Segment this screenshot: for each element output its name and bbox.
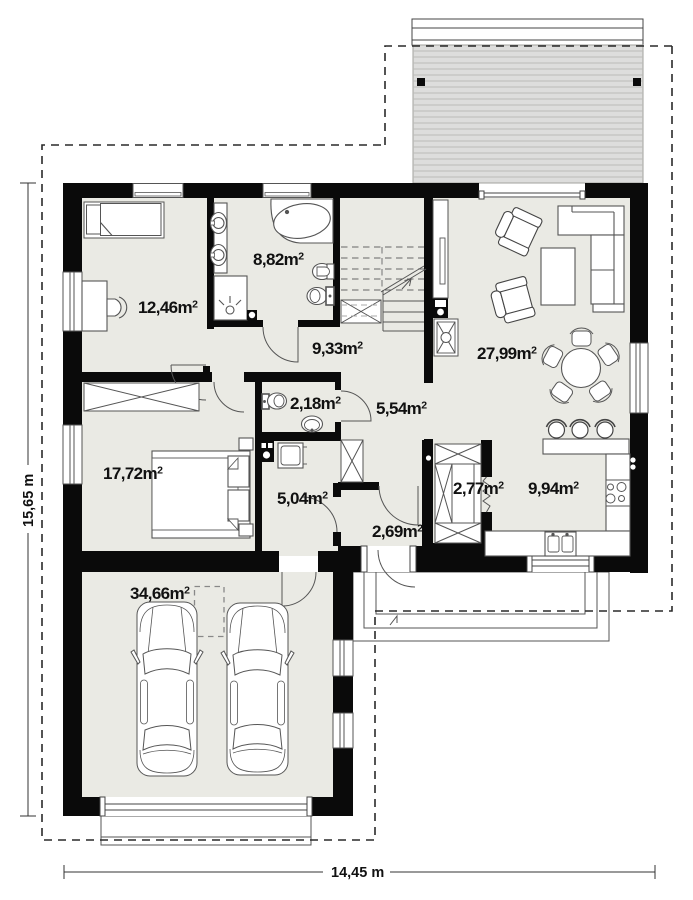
svg-text:12,46m2: 12,46m2 [138, 298, 198, 317]
svg-text:2,18m2: 2,18m2 [290, 394, 341, 413]
svg-text:5,04m2: 5,04m2 [277, 489, 328, 508]
svg-text:9,94m2: 9,94m2 [528, 479, 579, 498]
svg-text:27,99m2: 27,99m2 [477, 344, 537, 363]
svg-text:14,45 m: 14,45 m [331, 865, 384, 881]
svg-text:9,33m2: 9,33m2 [312, 339, 363, 358]
svg-text:34,66m2: 34,66m2 [130, 584, 190, 603]
svg-text:5,54m2: 5,54m2 [376, 399, 427, 418]
svg-text:8,82m2: 8,82m2 [253, 250, 304, 269]
svg-text:2,77m2: 2,77m2 [453, 479, 504, 498]
svg-text:17,72m2: 17,72m2 [103, 464, 163, 483]
svg-text:15,65 m: 15,65 m [21, 474, 37, 527]
svg-text:2,69m2: 2,69m2 [372, 522, 423, 541]
